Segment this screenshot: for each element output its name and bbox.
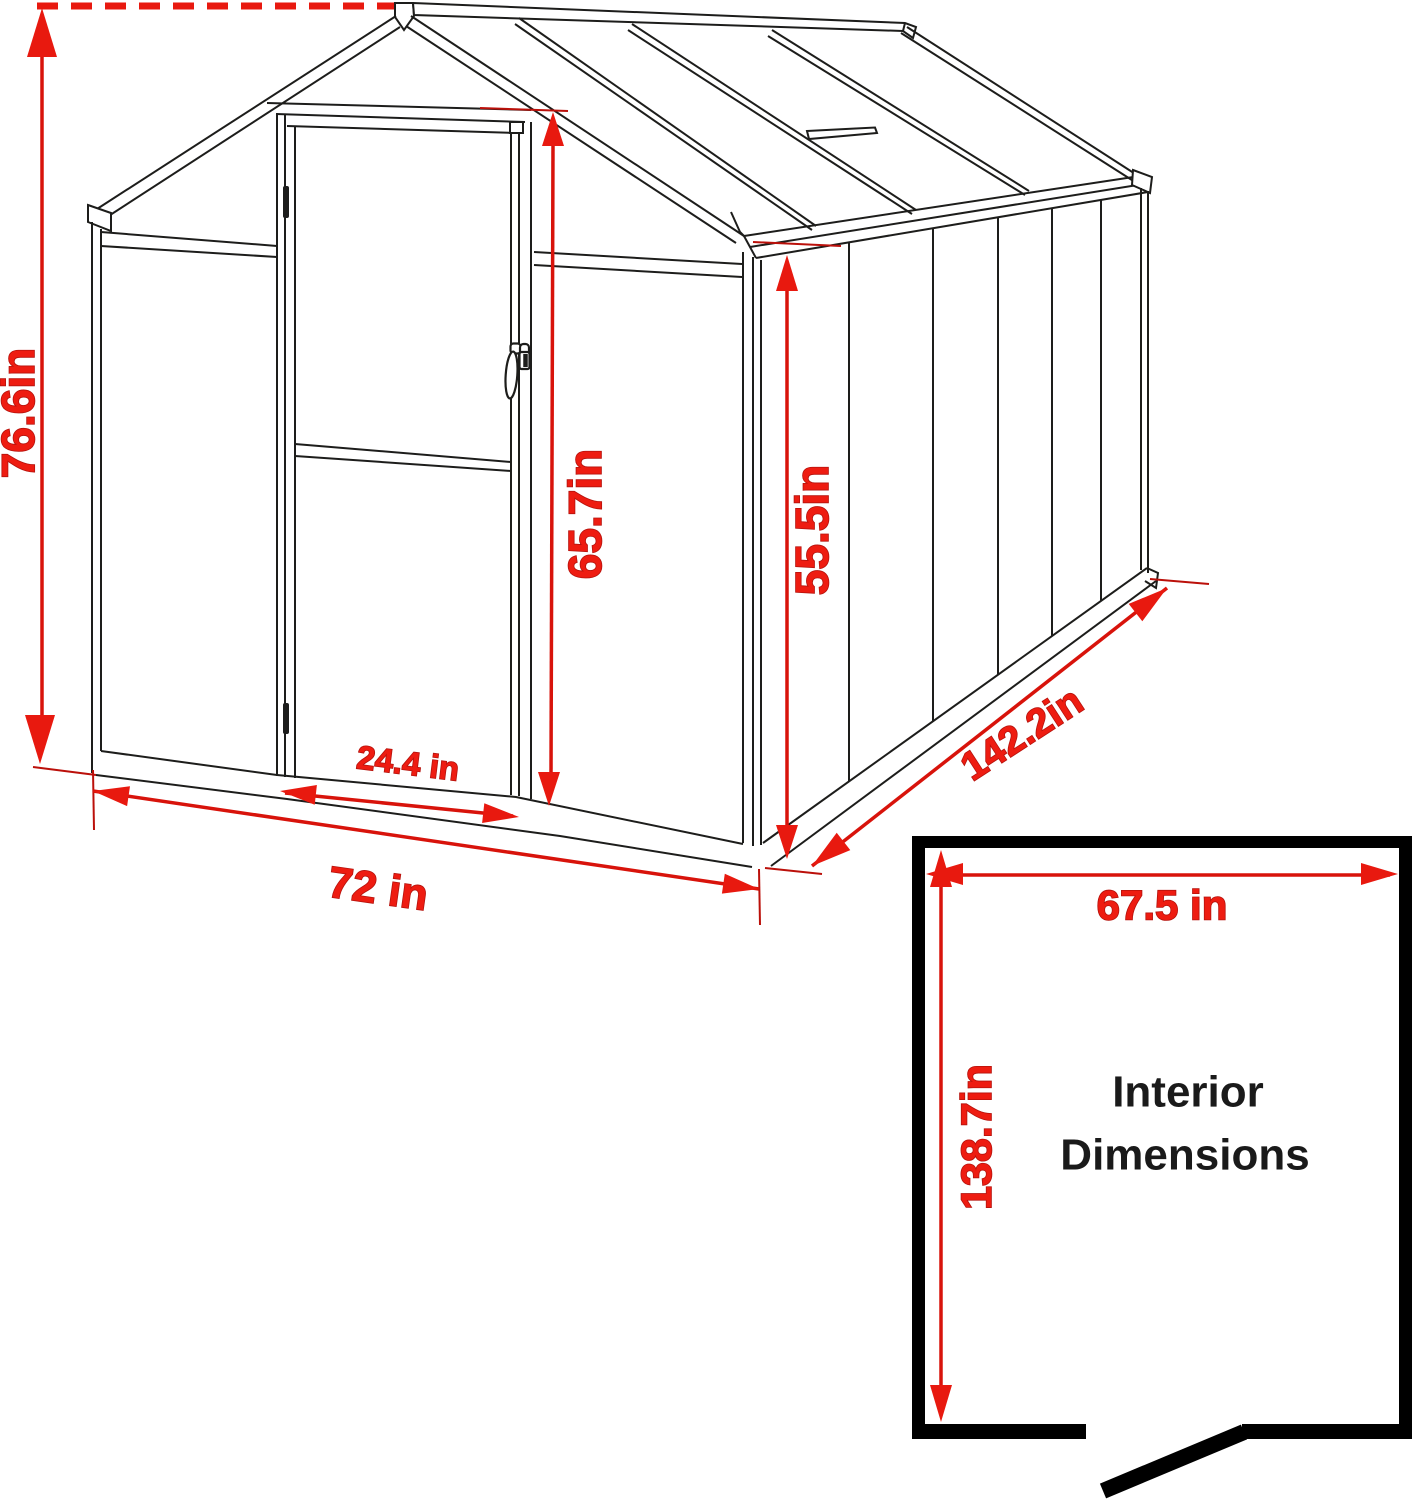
svg-text:65.7in: 65.7in <box>559 449 611 579</box>
svg-text:Interior: Interior <box>1112 1068 1264 1117</box>
svg-text:Dimensions: Dimensions <box>1060 1131 1309 1180</box>
svg-text:138.7in: 138.7in <box>953 1064 1001 1210</box>
svg-text:76.6in: 76.6in <box>0 348 44 478</box>
svg-text:55.5in: 55.5in <box>786 465 838 595</box>
svg-text:67.5 in: 67.5 in <box>1097 882 1228 929</box>
